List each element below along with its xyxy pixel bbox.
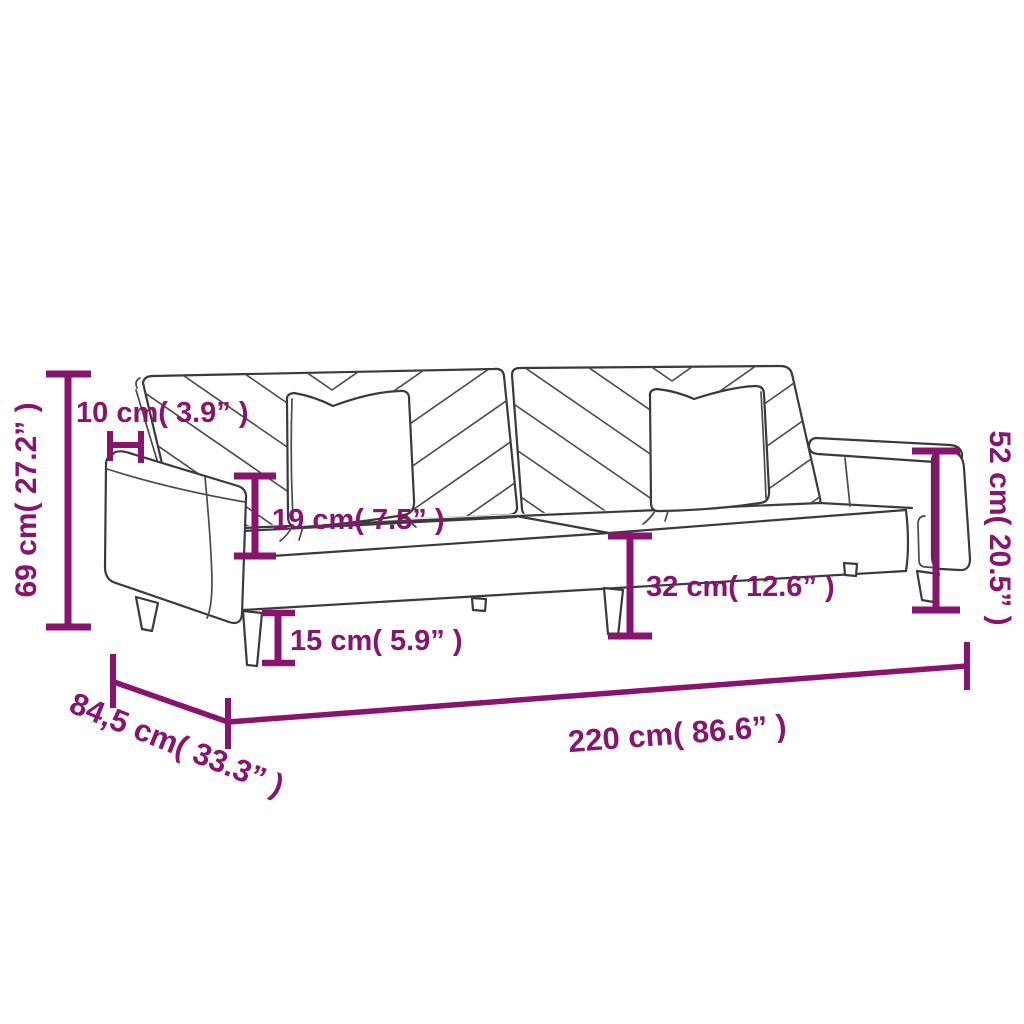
measure-line bbox=[228, 666, 967, 722]
total-width-label: 220 cm( 86.6” ) bbox=[567, 708, 788, 759]
pillow-right bbox=[643, 386, 769, 524]
middle-leg bbox=[604, 588, 623, 636]
total-height-label: 69 cm( 27.2” ) bbox=[10, 402, 43, 597]
sofa-line-drawing bbox=[100, 220, 970, 698]
leg-height-label: 15 cm( 5.9” ) bbox=[290, 625, 462, 657]
rear-foot-left bbox=[472, 598, 486, 611]
armrest-height-label: 52 cm( 20.5” ) bbox=[983, 430, 1016, 625]
dim-total-depth: 84,5 cm( 33.3” ) bbox=[65, 654, 289, 803]
seat-height-label: 32 cm( 12.6” ) bbox=[646, 571, 835, 603]
armrest-above-seat-label: 19 cm( 7.5” ) bbox=[272, 504, 444, 536]
backrest-offset-label: 10 cm( 3.9” ) bbox=[76, 397, 248, 429]
dim-total-width: 220 cm( 86.6” ) bbox=[228, 642, 967, 759]
diagram-svg: 69 cm( 27.2” ) 10 cm( 3.9” ) 19 cm( 7.5”… bbox=[0, 0, 1024, 1024]
dim-leg-height: 15 cm( 5.9” ) bbox=[262, 613, 462, 663]
rear-foot-right bbox=[844, 563, 857, 576]
front-left-leg bbox=[136, 597, 158, 631]
left-seat-leg bbox=[243, 611, 262, 666]
sofa-dimension-diagram: 69 cm( 27.2” ) 10 cm( 3.9” ) 19 cm( 7.5”… bbox=[0, 0, 1024, 1024]
